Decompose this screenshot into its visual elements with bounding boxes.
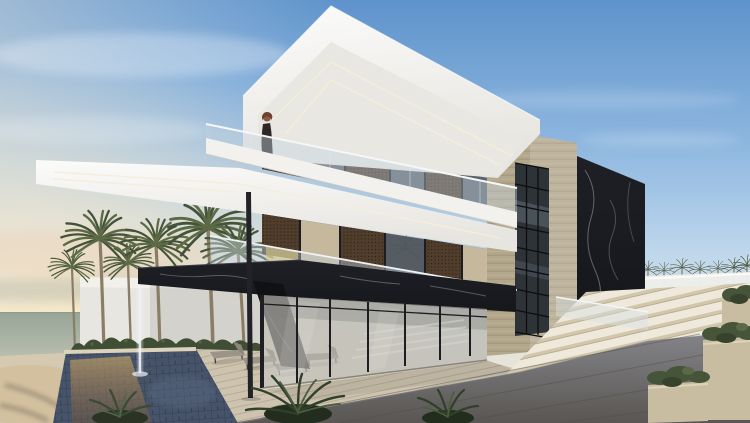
column-shadow: [241, 397, 261, 401]
tower-window-glass: [515, 163, 549, 336]
fountain-jet: [139, 285, 142, 373]
render-canvas: [0, 0, 750, 423]
fountain-splash: [132, 371, 148, 376]
planter: [702, 322, 750, 420]
planter: [647, 366, 710, 423]
pool-light-patch: [148, 376, 216, 408]
tower-window: [515, 163, 549, 338]
architectural-render: Sunset architectural rendering of a mode…: [0, 0, 750, 423]
